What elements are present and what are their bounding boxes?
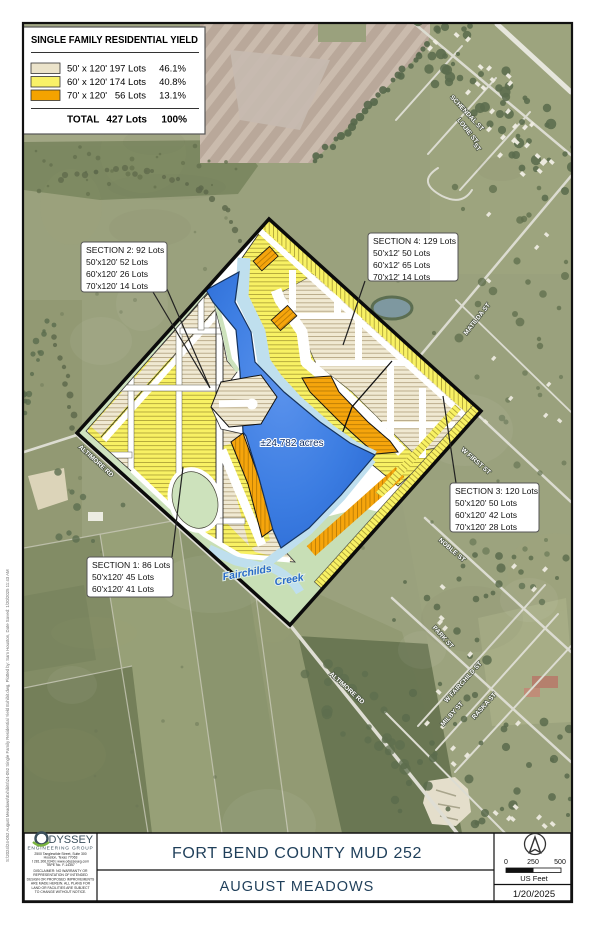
svg-text:50'x120' 45 Lots: 50'x120' 45 Lots: [92, 572, 154, 582]
svg-text:TBPE No. F-14357: TBPE No. F-14357: [46, 863, 75, 867]
svg-text:70'x12' 14 Lots: 70'x12' 14 Lots: [373, 272, 430, 282]
svg-text:1/20/2025: 1/20/2025: [513, 889, 555, 900]
svg-text:50'x120' 52 Lots: 50'x120' 52 Lots: [86, 257, 148, 267]
svg-text:427 Lots: 427 Lots: [106, 115, 147, 126]
svg-text:TOTAL: TOTAL: [67, 115, 99, 126]
svg-text:DYSSEY: DYSSEY: [49, 834, 94, 846]
svg-text:±24.782 acres: ±24.782 acres: [260, 438, 323, 449]
svg-text:250: 250: [527, 859, 539, 866]
svg-text:0: 0: [504, 859, 508, 866]
svg-text:174 Lots: 174 Lots: [110, 77, 147, 88]
svg-text:50'x12' 50 Lots: 50'x12' 50 Lots: [373, 248, 430, 258]
svg-text:60'x12' 65 Lots: 60'x12' 65 Lots: [373, 260, 430, 270]
svg-text:50'x120' 50 Lots: 50'x120' 50 Lots: [455, 498, 517, 508]
svg-text:56 Lots: 56 Lots: [115, 91, 146, 102]
svg-text:197 Lots: 197 Lots: [110, 64, 147, 75]
svg-text:SECTION 1: 86 Lots: SECTION 1: 86 Lots: [92, 560, 170, 570]
svg-text:70'x120' 14 Lots: 70'x120' 14 Lots: [86, 281, 148, 291]
svg-text:50' x 120': 50' x 120': [67, 64, 107, 75]
svg-text:ENGINEERING GROUP: ENGINEERING GROUP: [27, 846, 93, 852]
svg-text:SECTION 3: 120 Lots: SECTION 3: 120 Lots: [455, 486, 538, 496]
svg-text:SECTION 2: 92 Lots: SECTION 2: 92 Lots: [86, 245, 164, 255]
svg-text:60' x 120': 60' x 120': [67, 77, 107, 88]
svg-text:46.1%: 46.1%: [159, 64, 186, 75]
svg-text:S:\2024\24-052 August Meadows\: S:\2024\24-052 August Meadows\Exhibits\2…: [5, 569, 10, 862]
svg-text:TO CHANGE WITHOUT NOTICE.: TO CHANGE WITHOUT NOTICE.: [35, 890, 87, 894]
svg-text:100%: 100%: [161, 115, 187, 126]
svg-text:FORT BEND COUNTY MUD 252: FORT BEND COUNTY MUD 252: [172, 845, 422, 862]
svg-text:US Feet: US Feet: [520, 874, 548, 883]
svg-text:70'x120' 28 Lots: 70'x120' 28 Lots: [455, 522, 517, 532]
svg-text:13.1%: 13.1%: [159, 91, 186, 102]
svg-text:SECTION 4: 129 Lots: SECTION 4: 129 Lots: [373, 236, 456, 246]
svg-text:500: 500: [554, 859, 566, 866]
svg-text:AUGUST MEADOWS: AUGUST MEADOWS: [220, 879, 375, 895]
svg-text:70' x 120': 70' x 120': [67, 91, 107, 102]
svg-text:60'x120' 42 Lots: 60'x120' 42 Lots: [455, 510, 517, 520]
svg-text:60'x120' 41 Lots: 60'x120' 41 Lots: [92, 584, 154, 594]
svg-text:SINGLE FAMILY RESIDENTIAL YIEL: SINGLE FAMILY RESIDENTIAL YIELD: [31, 34, 198, 46]
svg-text:40.8%: 40.8%: [159, 77, 186, 88]
svg-text:60'x120' 26 Lots: 60'x120' 26 Lots: [86, 269, 148, 279]
